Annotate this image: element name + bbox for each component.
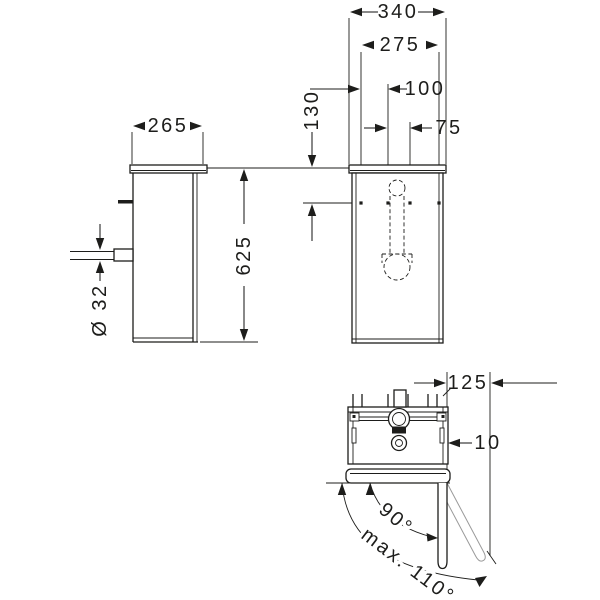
arrow-up-icon (240, 169, 248, 181)
technical-drawing-canvas: 340 275 100 75 130 (0, 0, 600, 600)
arrow-up-right-icon (475, 576, 487, 587)
dim-label-265: 265 (148, 115, 189, 137)
dim-label-diameter: Ø 32 (89, 283, 111, 336)
side-console-top (130, 165, 207, 173)
arrow-left-icon (491, 379, 503, 387)
arrow-left-icon (350, 8, 362, 16)
arrow-right-icon (375, 124, 387, 132)
door-open-90 (438, 483, 447, 569)
dim-label-625: 625 (233, 235, 255, 276)
drain-hole (392, 436, 407, 451)
arrow-left-icon (410, 124, 422, 132)
door-tip-tick (487, 551, 496, 564)
arrow-left-icon (362, 41, 374, 49)
pipe-end-cap (114, 249, 133, 261)
arrow-down-icon (96, 238, 104, 250)
dim-label-275: 275 (380, 34, 421, 56)
dim-depth: 265 (132, 115, 203, 164)
dimension-drawing: 340 275 100 75 130 (0, 0, 600, 600)
front-cabinet-body (352, 173, 443, 343)
side-view: 265 Ø 32 (70, 115, 258, 342)
arrow-left-icon (133, 122, 145, 130)
dim-label-340: 340 (378, 1, 419, 23)
dim-label-100: 100 (405, 78, 446, 100)
top-view: 125 10 (326, 372, 557, 600)
dim-side-distance: 125 (414, 372, 557, 394)
dim-label-130: 130 (301, 90, 323, 131)
angle-110: max. 110° (338, 483, 487, 600)
side-bracket-right (440, 428, 444, 443)
arrow-down-icon (308, 155, 316, 167)
dim-label-125: 125 (448, 372, 489, 394)
front-console-top (349, 165, 446, 173)
clamp-block (392, 427, 406, 434)
arrow-up-icon (366, 483, 374, 495)
side-bracket-left (352, 428, 356, 443)
arrow-right-icon (427, 533, 439, 542)
top-door-closed (346, 469, 450, 483)
drain-pipe (70, 249, 133, 261)
dim-label-75: 75 (435, 117, 462, 139)
dim-label-10: 10 (474, 432, 501, 454)
mounting-pins (353, 390, 437, 407)
dim-fixing-spacing-right: 75 (364, 117, 463, 139)
arrow-right-icon (426, 41, 438, 49)
arrow-up-icon (308, 204, 316, 216)
arrow-left-icon (388, 85, 400, 93)
arrow-up-icon (338, 483, 346, 495)
dim-drain-diameter: Ø 32 (89, 224, 111, 337)
arrow-right-icon (434, 379, 446, 387)
arrow-left-icon (448, 439, 460, 447)
dim-overall-width: 340 (350, 1, 445, 23)
arrow-right-icon (190, 122, 202, 130)
arrow-down-icon (240, 329, 248, 341)
dim-fixing-spacing-left: 100 (310, 78, 445, 100)
dim-fixing-width: 275 (362, 34, 438, 56)
arrow-right-icon (433, 8, 445, 16)
door-handle-profile (118, 200, 133, 204)
arrow-up-icon (96, 261, 104, 273)
dim-height: 625 (200, 169, 258, 342)
center-bracket (394, 390, 406, 407)
arrow-right-icon (348, 85, 360, 93)
